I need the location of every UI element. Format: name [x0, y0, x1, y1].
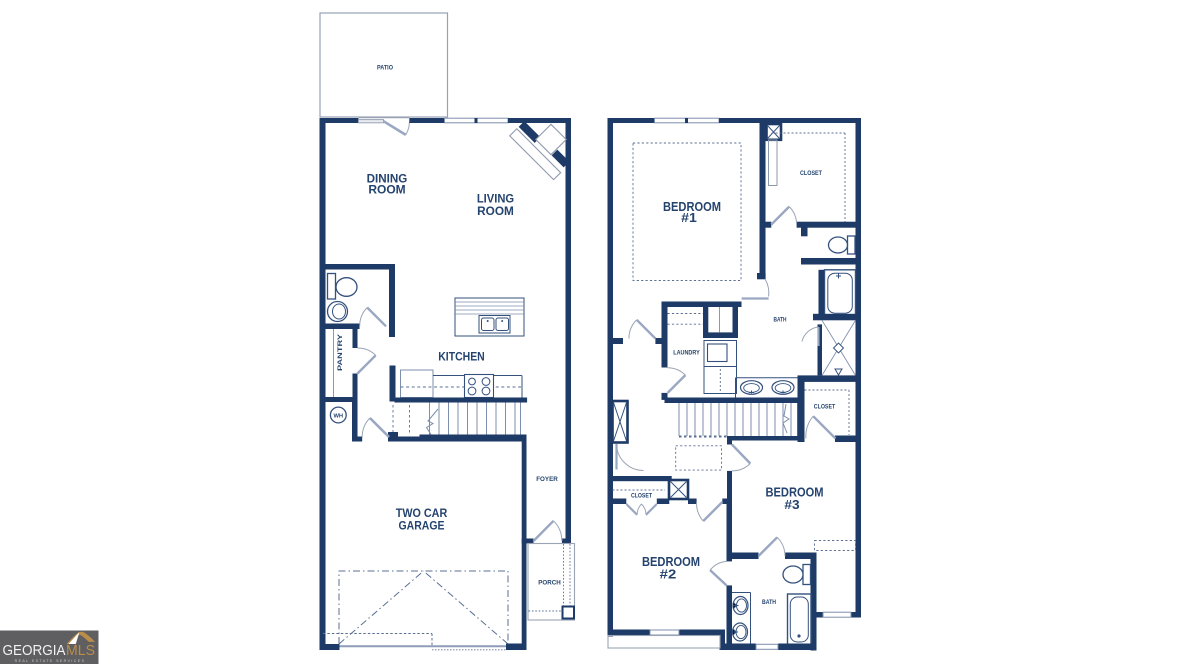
svg-text:MLS: MLS — [66, 643, 95, 659]
svg-text:#2: #2 — [660, 568, 677, 582]
svg-text:REAL ESTATE SERVICES: REAL ESTATE SERVICES — [15, 659, 86, 663]
svg-text:CLOSET: CLOSET — [800, 170, 822, 177]
svg-text:CLOSET: CLOSET — [814, 404, 836, 411]
svg-text:BATH: BATH — [774, 317, 787, 324]
svg-text:GARAGE: GARAGE — [399, 519, 445, 533]
svg-text:PANTRY: PANTRY — [337, 333, 344, 371]
svg-text:BATH: BATH — [762, 599, 776, 606]
svg-text:#3: #3 — [784, 498, 799, 512]
svg-text:GEORGIA: GEORGIA — [3, 642, 66, 659]
svg-text:PORCH: PORCH — [538, 580, 561, 587]
svg-text:FOYER: FOYER — [536, 476, 558, 483]
svg-text:LAUNDRY: LAUNDRY — [673, 350, 700, 357]
svg-text:ROOM: ROOM — [368, 182, 405, 196]
svg-text:ROOM: ROOM — [477, 204, 514, 218]
svg-text:CLOSET: CLOSET — [631, 493, 652, 500]
svg-text:PATIO: PATIO — [377, 65, 393, 72]
svg-text:#1: #1 — [681, 211, 697, 225]
svg-text:KITCHEN: KITCHEN — [438, 350, 485, 364]
svg-text:WH: WH — [333, 413, 343, 419]
